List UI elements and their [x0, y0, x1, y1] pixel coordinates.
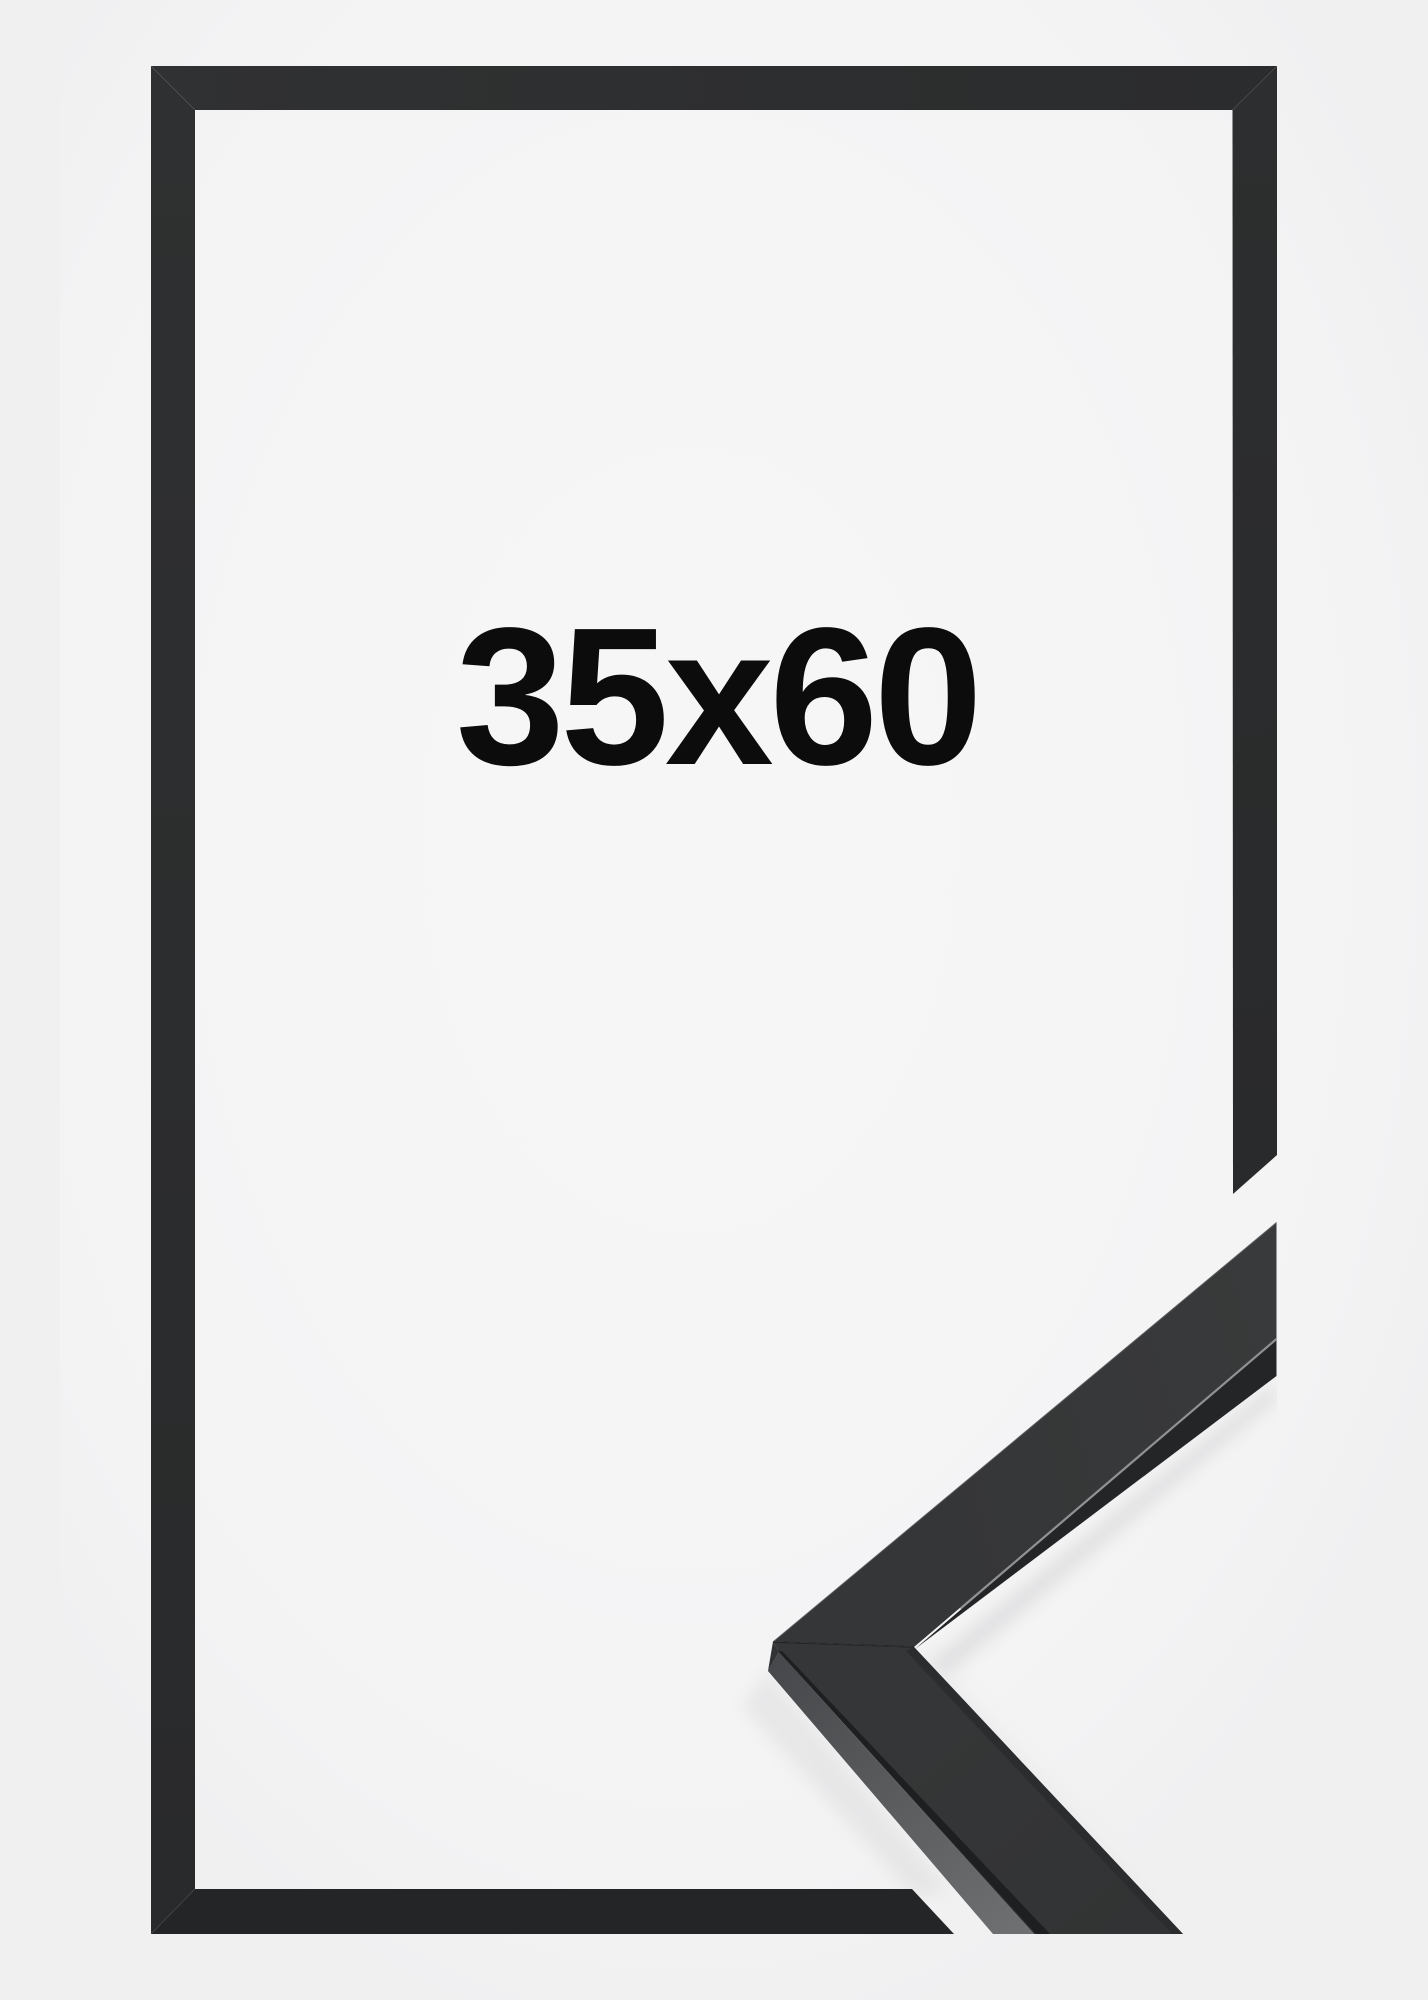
svg-text:35x60: 35x60 — [456, 587, 979, 806]
